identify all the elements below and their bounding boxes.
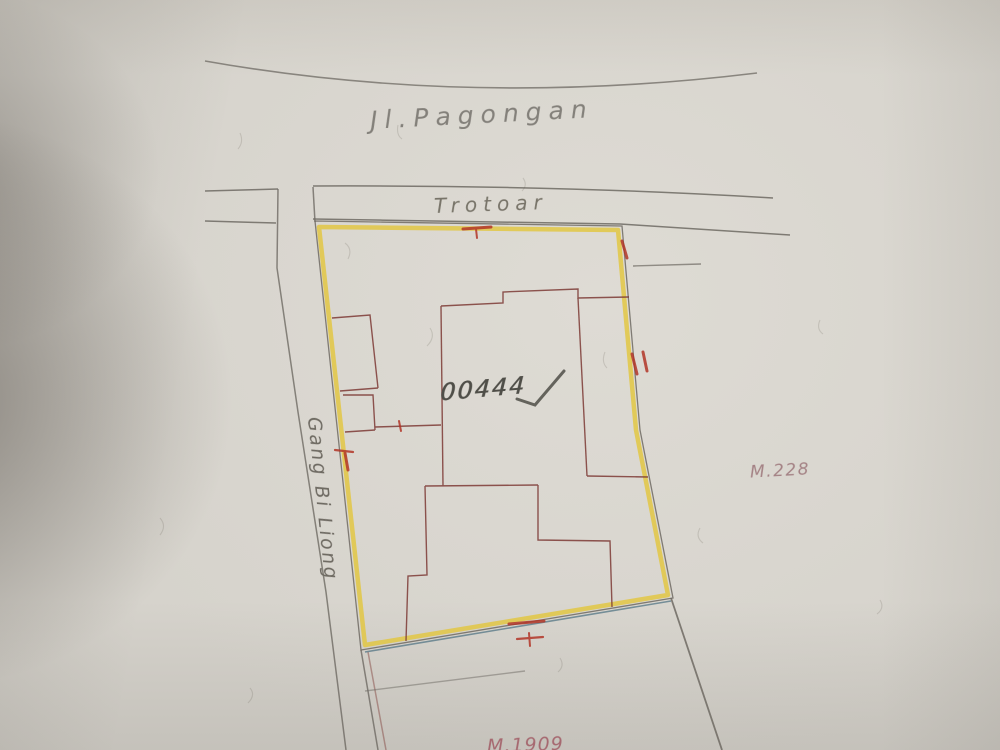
marker-m1909-label: M.1909	[487, 733, 565, 750]
building-outlines	[332, 289, 648, 641]
sidewalk-label: Trotoar	[434, 190, 548, 218]
survey-tick-marks	[335, 227, 647, 646]
marker-m228-label: M.228	[750, 459, 811, 482]
alley-lines	[277, 187, 386, 750]
parcel-boundary	[315, 221, 673, 652]
photographed-survey-map: Jl.Pagongan Trotoar Gang Bi Liong 00444 …	[0, 0, 1000, 750]
road-edge-curve	[205, 61, 757, 88]
neighbor-parcel-lines	[365, 264, 722, 750]
